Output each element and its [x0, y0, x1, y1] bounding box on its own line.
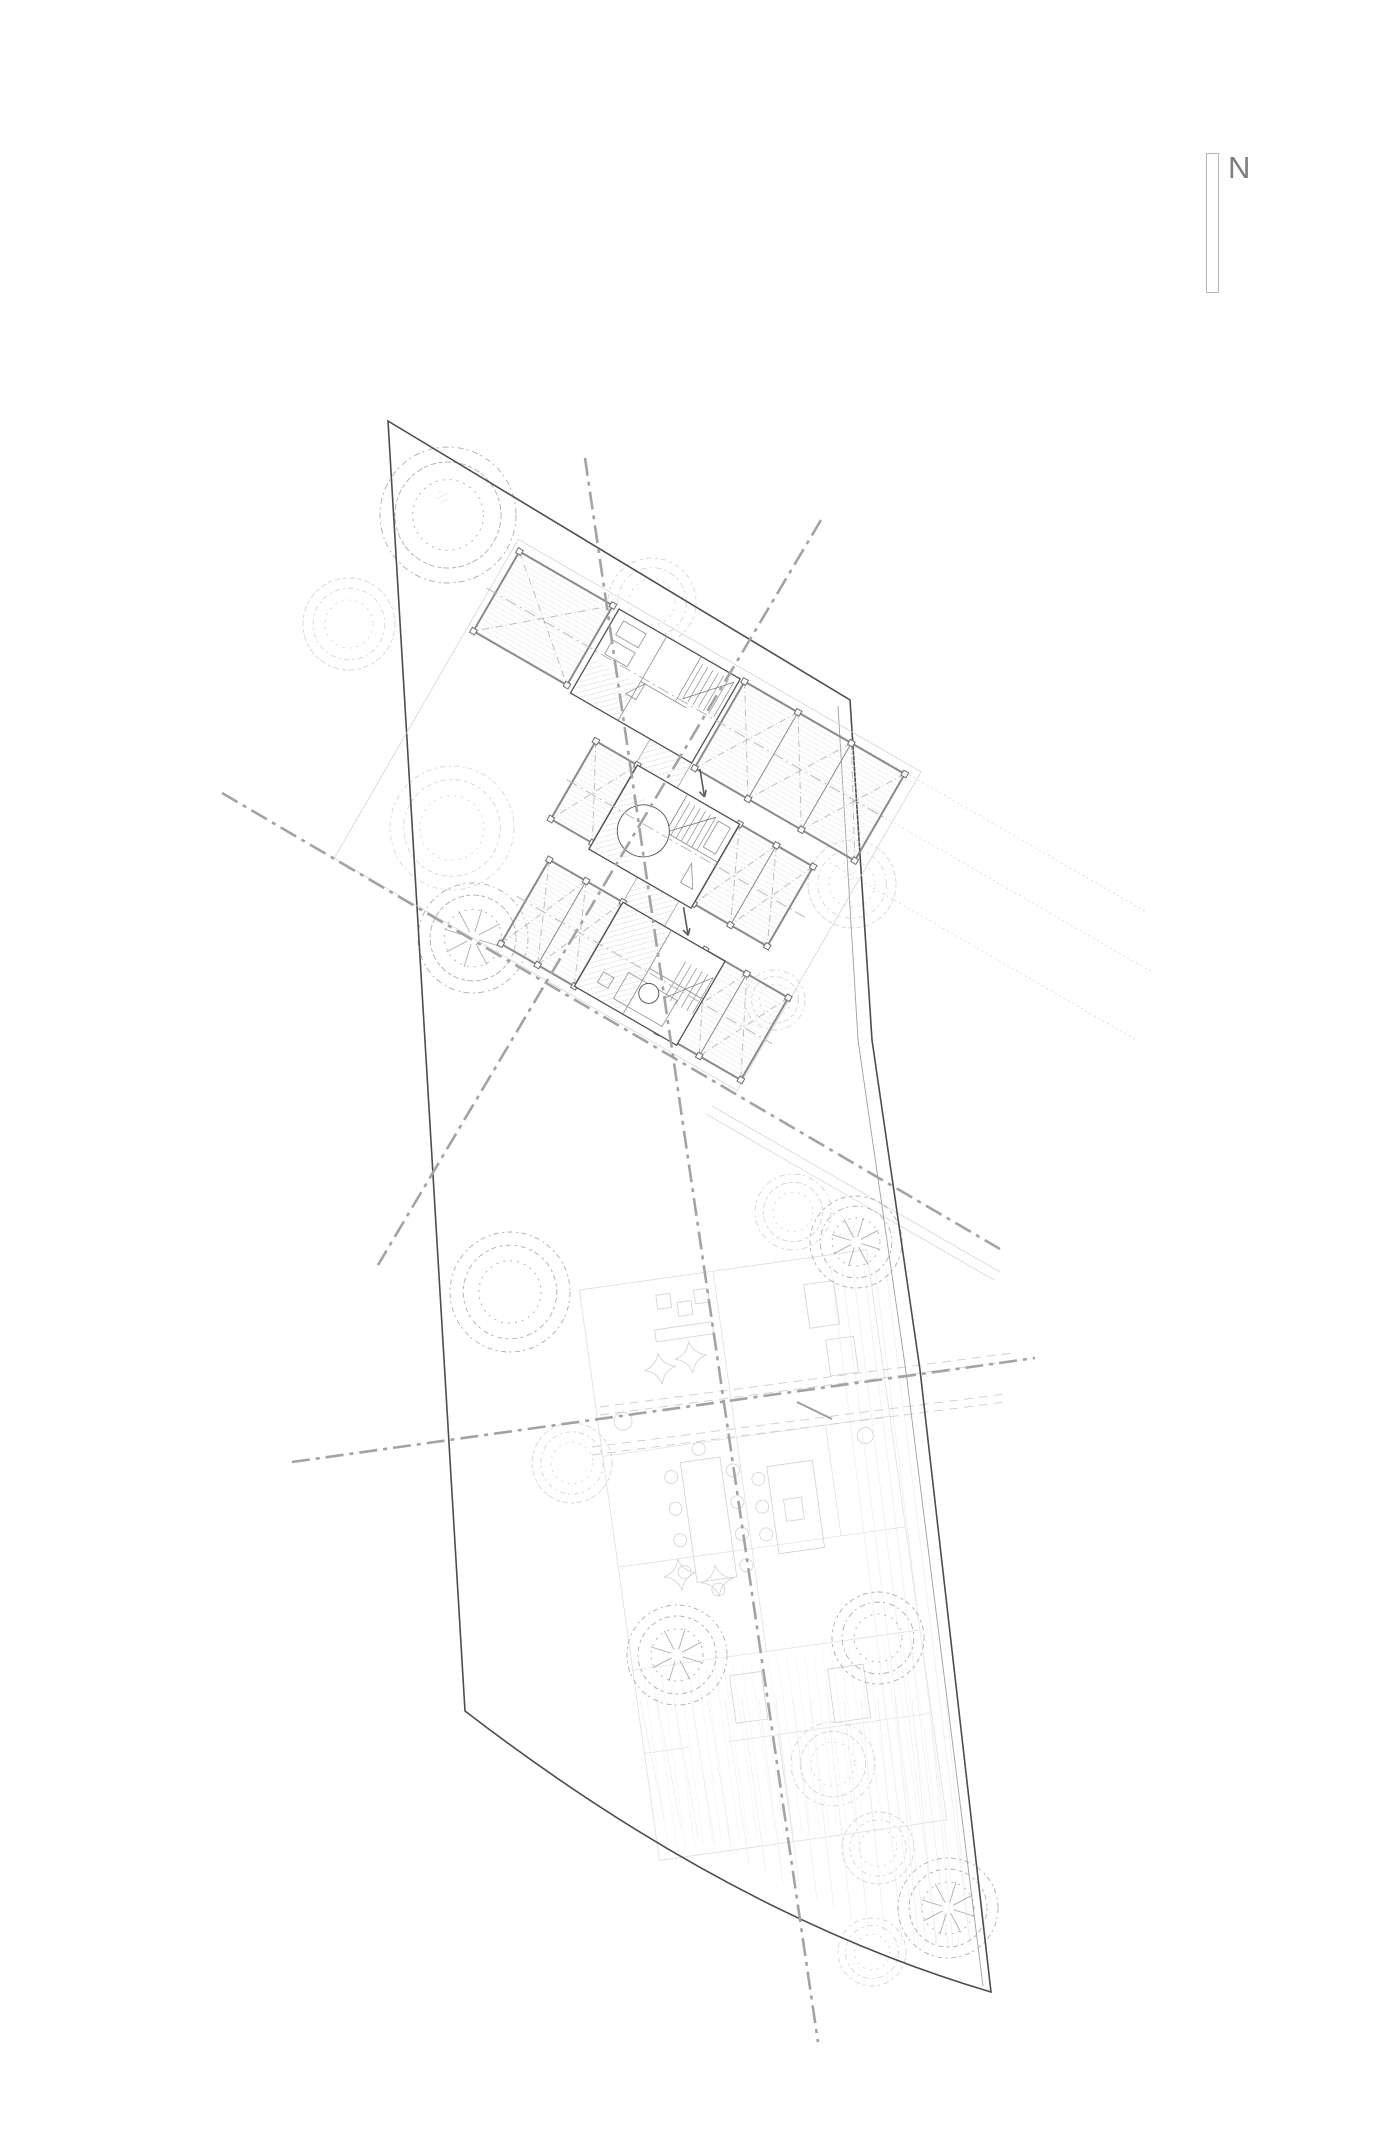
- axis-tick: [797, 1402, 832, 1419]
- tree: [390, 766, 514, 890]
- projection-line: [706, 1114, 994, 1280]
- boundary-path-line: [838, 706, 983, 1986]
- tree: [303, 578, 395, 670]
- tree: [810, 1196, 902, 1288]
- axis-lower-long: [292, 1358, 1035, 1462]
- ghost-ground-floor-plan: [579, 1250, 946, 1861]
- north-label: N: [1228, 150, 1251, 186]
- projection-line: [846, 795, 1152, 972]
- tree: [838, 1918, 906, 1986]
- entry-arrow: [673, 907, 700, 935]
- tree: [532, 1423, 612, 1503]
- tree: [380, 447, 516, 583]
- building-cluster: [332, 538, 927, 1094]
- tree: [755, 1174, 831, 1250]
- tree: [627, 1605, 727, 1705]
- north-arrow-bar: [1206, 153, 1219, 293]
- projection-line: [712, 1106, 1000, 1272]
- guide-line: [600, 1353, 1012, 1407]
- tree: [450, 1232, 570, 1352]
- site-plan-page: N: [0, 0, 1390, 2148]
- site-plan-drawing: [0, 0, 1390, 2148]
- projection-line: [830, 863, 1138, 1041]
